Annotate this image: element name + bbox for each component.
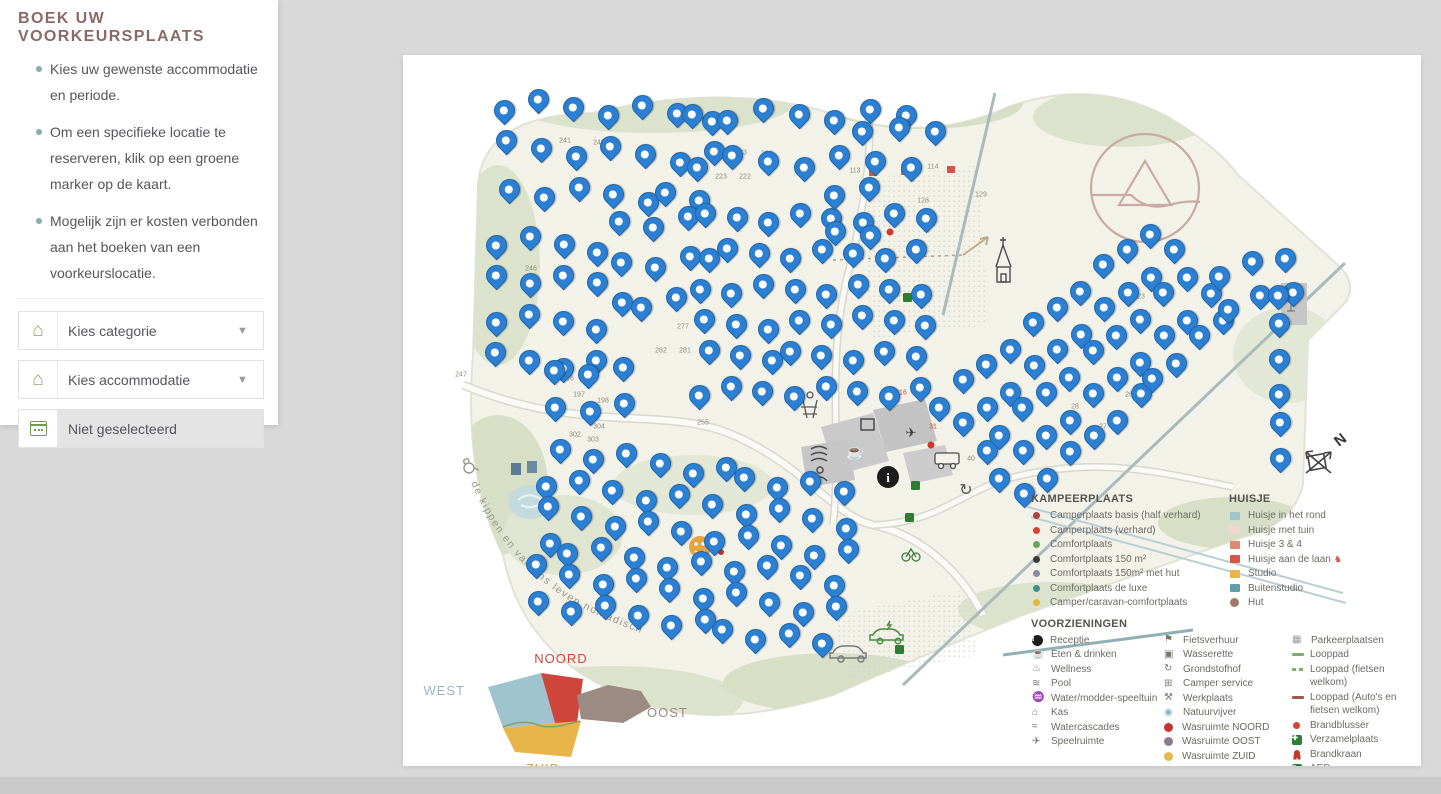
- map-pin[interactable]: [875, 275, 905, 305]
- map-pin[interactable]: [1172, 263, 1202, 293]
- huisje-laan-square: [1229, 553, 1245, 566]
- map-pin[interactable]: [722, 578, 752, 608]
- map-pin[interactable]: [661, 282, 691, 312]
- map-pin[interactable]: [901, 341, 931, 371]
- legend-item-label: Eten & drinken: [1051, 648, 1117, 662]
- map-pin[interactable]: [1113, 277, 1143, 307]
- divider: [16, 298, 264, 299]
- map-pin[interactable]: [1066, 277, 1096, 307]
- legend-item-label: Looppad (fietsen welkom): [1310, 663, 1409, 690]
- booking-sidebar: BOEK UW VOORKEURSPLAATS Kies uw gewenste…: [0, 0, 278, 425]
- legend-item: Buitenstudio: [1229, 582, 1404, 596]
- map-pin[interactable]: [879, 306, 909, 336]
- map-pin[interactable]: [610, 388, 640, 418]
- legend-item-label: Werkplaats: [1183, 692, 1233, 706]
- map-pin[interactable]: [848, 301, 878, 331]
- page-bottom-strip: [0, 777, 1441, 794]
- verzamelplaats-icon: ✚: [1291, 733, 1307, 746]
- map-pin[interactable]: [717, 279, 747, 309]
- legend-item-label: Wasserette: [1183, 648, 1233, 662]
- map-pin[interactable]: [481, 338, 511, 368]
- map-pin[interactable]: [741, 625, 771, 655]
- home-icon: ⌂: [19, 361, 58, 398]
- map-pin[interactable]: [753, 315, 783, 345]
- map-pin[interactable]: [789, 153, 819, 183]
- map-pin[interactable]: [744, 239, 774, 269]
- comfortplaats-dot: [1031, 538, 1047, 551]
- map-pin[interactable]: [593, 101, 623, 131]
- calendar-icon: [19, 410, 58, 447]
- map-pin[interactable]: [492, 126, 522, 156]
- chevron-down-icon: ▼: [237, 361, 263, 398]
- werkplaats-icon: ⚒: [1164, 692, 1180, 705]
- map-pin[interactable]: [582, 315, 612, 345]
- map-pin[interactable]: [717, 372, 747, 402]
- map-pin[interactable]: [754, 147, 784, 177]
- map-pin[interactable]: [655, 574, 685, 604]
- legend-item: Comfortplaats de luxe: [1031, 582, 1229, 596]
- map-pin[interactable]: [1009, 436, 1039, 466]
- chevron-down-icon: ▼: [237, 312, 263, 349]
- map-pin[interactable]: [1033, 464, 1063, 494]
- map-pin[interactable]: [921, 117, 951, 147]
- map-pin[interactable]: [1265, 344, 1295, 374]
- map-pin[interactable]: [755, 588, 785, 618]
- wasruimte-noord-dot: [1163, 721, 1179, 734]
- map-pin[interactable]: [856, 94, 886, 124]
- huisje-tuin-square: [1229, 524, 1245, 537]
- map-pin[interactable]: [549, 307, 579, 337]
- map-pin[interactable]: [798, 503, 828, 533]
- map-pin[interactable]: [639, 212, 669, 242]
- legend-item: ✚Verzamelplaats: [1291, 733, 1409, 747]
- map-pin[interactable]: [1270, 244, 1300, 274]
- map-pin[interactable]: [1019, 307, 1049, 337]
- map-pin[interactable]: [515, 269, 545, 299]
- legend-item: Wasruimte ZUID: [1163, 750, 1291, 764]
- map-pin[interactable]: [829, 476, 859, 506]
- map-pin[interactable]: [807, 341, 837, 371]
- grondstofhof-icon: ↻: [1164, 663, 1180, 676]
- map-pin[interactable]: [1056, 436, 1086, 466]
- map-pin[interactable]: [1055, 405, 1085, 435]
- map-pin[interactable]: [1103, 406, 1133, 436]
- map-pin[interactable]: [949, 408, 979, 438]
- map-pin[interactable]: [972, 350, 1002, 380]
- legend-item-label: Comfortplaats de luxe: [1050, 582, 1147, 596]
- legend-item: Huisje in het rond: [1229, 509, 1404, 523]
- map-pin[interactable]: [870, 336, 900, 366]
- map-pin[interactable]: [1079, 378, 1109, 408]
- legend-item-suffix-icon: ♞: [1334, 553, 1342, 567]
- map-pin[interactable]: [748, 376, 778, 406]
- map-pin[interactable]: [481, 307, 511, 337]
- map-pin[interactable]: [861, 147, 891, 177]
- map-pin[interactable]: [722, 203, 752, 233]
- map-pin[interactable]: [545, 434, 575, 464]
- legend-item: Huisje 3 & 4: [1229, 538, 1404, 552]
- date-field-label: Niet geselecteerd: [58, 410, 263, 447]
- map-pin[interactable]: [628, 91, 658, 121]
- map-pin[interactable]: [482, 261, 512, 291]
- map-pin[interactable]: [722, 310, 752, 340]
- legend-item-label: AED: [1310, 762, 1331, 766]
- map-pin[interactable]: [667, 516, 697, 546]
- legend-item: Camper/caravan-comfortplaats: [1031, 596, 1229, 610]
- map-pin[interactable]: [874, 381, 904, 411]
- camper-service-icon: ⊞: [1164, 677, 1180, 690]
- receptie-info-icon: i: [1031, 634, 1047, 647]
- map-pin[interactable]: [1031, 378, 1061, 408]
- legend-item: ♒Water/modder-speeltuin: [1031, 692, 1163, 706]
- camperplaats-verhard-dot: [1031, 524, 1047, 537]
- legend-item: Looppad (Auto's en fietsen welkom): [1291, 691, 1409, 718]
- legend-item-label: Wellness: [1051, 663, 1091, 677]
- map-pin[interactable]: [582, 268, 612, 298]
- accommodation-dropdown-label: Kies accommodatie: [58, 361, 237, 398]
- watercascades-icon: ≈: [1032, 721, 1048, 734]
- legend-item-label: Studio: [1248, 567, 1276, 581]
- map-pin[interactable]: [590, 591, 620, 621]
- legend-item-label: Watercascades: [1051, 721, 1120, 735]
- map-pin[interactable]: [1042, 292, 1072, 322]
- legend-voorzieningen-col2: ⚑Fietsverhuur▣Wasserette↻Grondstofhof⊞Ca…: [1163, 634, 1291, 767]
- instruction-item: Mogelijk zijn er kosten verbonden aan he…: [36, 208, 264, 286]
- legend-item: Brandkraan: [1291, 748, 1409, 762]
- map-pin[interactable]: [645, 448, 675, 478]
- brandkraan-icon: [1291, 748, 1307, 761]
- huisje-3-4-square: [1229, 538, 1245, 551]
- map-pin[interactable]: [596, 132, 626, 162]
- map-pin[interactable]: [1265, 408, 1295, 438]
- legend-voorzieningen-col3: ▦ParkeerplaatsenLooppadLooppad (fietsen …: [1291, 634, 1409, 767]
- map-pin[interactable]: [985, 463, 1015, 493]
- parkeerplaatsen-icon: ▦: [1292, 634, 1308, 647]
- map-pin[interactable]: [820, 180, 850, 210]
- map-pin[interactable]: [1149, 321, 1179, 351]
- map-pin[interactable]: [557, 597, 587, 627]
- map-pin[interactable]: [995, 335, 1025, 365]
- map-pin[interactable]: [906, 372, 936, 402]
- map-pin[interactable]: [527, 134, 557, 164]
- wasruimte-oost-dot: [1163, 735, 1179, 748]
- instruction-item: Kies uw gewenste accommodatie en periode…: [36, 56, 264, 108]
- huisje-rond-square: [1229, 509, 1245, 522]
- legend-item: Huisje aan de laan♞: [1229, 553, 1404, 567]
- map-pin[interactable]: [633, 506, 663, 536]
- map-pin[interactable]: [606, 247, 636, 277]
- legend-item: Wasruimte OOST: [1163, 735, 1291, 749]
- legend-item: ≋Pool: [1031, 677, 1163, 691]
- legend-item-label: Camper service: [1183, 677, 1253, 691]
- camper-caravan-dot: [1031, 596, 1047, 609]
- category-dropdown-label: Kies categorie: [58, 312, 237, 349]
- map-pin[interactable]: [686, 274, 716, 304]
- map-pin[interactable]: [1102, 363, 1132, 393]
- legend-voorzieningen-col1: iReceptie☕Eten & drinken♨Wellness≋Pool♒W…: [1031, 634, 1163, 767]
- instruction-list: Kies uw gewenste accommodatie en periode…: [18, 56, 264, 286]
- legend-item-label: Wasruimte ZUID: [1182, 750, 1256, 764]
- map-pin[interactable]: [925, 392, 955, 422]
- map-pin[interactable]: [785, 199, 815, 229]
- map-pin[interactable]: [811, 372, 841, 402]
- legend-item: ♨Wellness: [1031, 663, 1163, 677]
- instruction-text: Mogelijk zijn er kosten verbonden aan he…: [50, 213, 258, 281]
- map-pin[interactable]: [843, 377, 873, 407]
- map-pin[interactable]: [776, 243, 806, 273]
- map-pin[interactable]: [1125, 305, 1155, 335]
- map-pin[interactable]: [612, 438, 642, 468]
- legend-item: ⚒Werkplaats: [1163, 692, 1291, 706]
- legend-item-label: Huisje in het rond: [1248, 509, 1326, 523]
- looppad-autos-line: [1291, 691, 1307, 704]
- instruction-item: Om een specifieke locatie te reserveren,…: [36, 119, 264, 197]
- legend-item-label: Camperplaats (verhard): [1050, 524, 1156, 538]
- map-pin[interactable]: [515, 346, 545, 376]
- legend-item: Comfortplaats: [1031, 538, 1229, 552]
- map-pin[interactable]: [780, 381, 810, 411]
- legend-huisje-list: Huisje in het rondHuisje met tuinHuisje …: [1229, 509, 1404, 610]
- map-pin[interactable]: [825, 141, 855, 171]
- legend-item: Looppad: [1291, 648, 1409, 662]
- home-icon: ⌂: [19, 312, 58, 349]
- legend-item-label: Speelruimte: [1051, 735, 1104, 749]
- legend-item-label: Huisje aan de laan: [1248, 553, 1331, 567]
- map-pin[interactable]: [843, 270, 873, 300]
- map-pin[interactable]: [1043, 335, 1073, 365]
- legend-item: ≈Watercascades: [1031, 721, 1163, 735]
- park-map[interactable]: i ☕ ✈ ↻: [403, 55, 1421, 766]
- date-field[interactable]: Niet geselecteerd: [18, 409, 264, 448]
- map-pin[interactable]: [820, 106, 850, 136]
- map-pin[interactable]: [529, 182, 559, 212]
- map-pin[interactable]: [726, 341, 756, 371]
- map-pin[interactable]: [624, 601, 654, 631]
- legend-voorzieningen-title: VOORZIENINGEN: [1031, 618, 1409, 630]
- map-pin[interactable]: [549, 230, 579, 260]
- aed-icon: ♥: [1291, 762, 1307, 766]
- map-pin[interactable]: [1080, 421, 1110, 451]
- map-pin[interactable]: [1090, 293, 1120, 323]
- legend-item-label: Parkeerplaatsen: [1311, 634, 1384, 648]
- legend-item: Huisje met tuin: [1229, 524, 1404, 538]
- map-pin[interactable]: [1032, 421, 1062, 451]
- map-pin[interactable]: [575, 396, 605, 426]
- map-pin[interactable]: [1113, 235, 1143, 265]
- legend-item: Comfortplaats 150 m²: [1031, 553, 1229, 567]
- legend-item-label: Comfortplaats 150 m²: [1050, 553, 1146, 567]
- map-pin[interactable]: [1019, 350, 1049, 380]
- looppad-fietsen-line: [1291, 663, 1307, 676]
- map-pin[interactable]: [1136, 219, 1166, 249]
- map-pin[interactable]: [604, 207, 634, 237]
- map-pin[interactable]: [1265, 380, 1295, 410]
- legend-item-label: Grondstofhof: [1183, 663, 1241, 677]
- map-pin[interactable]: [812, 279, 842, 309]
- map-pin[interactable]: [561, 142, 591, 172]
- map-pin[interactable]: [489, 95, 519, 125]
- map-pin[interactable]: [555, 560, 585, 590]
- comfortplaats-deluxe-dot: [1031, 582, 1047, 595]
- fietsverhuur-icon: ⚑: [1164, 634, 1180, 647]
- brandblusser-dot: [1291, 719, 1307, 732]
- legend-item: Camperplaats basis (half verhard): [1031, 509, 1229, 523]
- looppad-line: [1291, 648, 1307, 661]
- map-pin[interactable]: [880, 199, 910, 229]
- map-pin[interactable]: [608, 352, 638, 382]
- legend-item: ↻Grondstofhof: [1163, 663, 1291, 677]
- legend-item-label: Comfortplaats: [1050, 538, 1112, 552]
- legend-item: Studio: [1229, 567, 1404, 581]
- map-pin[interactable]: [754, 208, 784, 238]
- legend-item-label: Brandkraan: [1310, 748, 1362, 762]
- pool-icon: ≋: [1032, 677, 1048, 690]
- map-pin[interactable]: [912, 203, 942, 233]
- map-pin[interactable]: [622, 564, 652, 594]
- map-pin[interactable]: [564, 172, 594, 202]
- map-pin[interactable]: [906, 279, 936, 309]
- legend-item-label: Looppad: [1310, 648, 1349, 662]
- legend-item-label: Camper/caravan-comfortplaats: [1050, 596, 1187, 610]
- legend-item-label: Fietsverhuur: [1183, 634, 1239, 648]
- map-pin[interactable]: [765, 493, 795, 523]
- legend-item: ⊞Camper service: [1163, 677, 1291, 691]
- map-pin[interactable]: [780, 274, 810, 304]
- legend-item-label: Receptie: [1050, 634, 1089, 648]
- map-pin[interactable]: [821, 592, 851, 622]
- legend-item-label: Hut: [1248, 596, 1264, 610]
- map-pin[interactable]: [567, 502, 597, 532]
- map-pin[interactable]: [1161, 348, 1191, 378]
- map-pin[interactable]: [870, 244, 900, 274]
- legend-item: ♥AED: [1291, 762, 1409, 766]
- legend-item: Hut: [1229, 596, 1404, 610]
- camperplaats-basis-dot: [1031, 509, 1047, 522]
- map-pin[interactable]: [559, 93, 589, 123]
- map-pin[interactable]: [524, 85, 554, 115]
- map-pin[interactable]: [549, 260, 579, 290]
- legend-item: ▦Parkeerplaatsen: [1291, 634, 1409, 648]
- legend-item-label: Looppad (Auto's en fietsen welkom): [1310, 691, 1409, 718]
- map-pin[interactable]: [785, 305, 815, 335]
- natuurvijver-icon: ◉: [1164, 706, 1180, 719]
- map-pin[interactable]: [534, 492, 564, 522]
- studio-square: [1229, 567, 1245, 580]
- map-pin[interactable]: [524, 587, 554, 617]
- legend-item: Camperplaats (verhard): [1031, 524, 1229, 538]
- map-pin[interactable]: [1264, 309, 1294, 339]
- map-pin[interactable]: [816, 310, 846, 340]
- legend-item: ▣Wasserette: [1163, 648, 1291, 662]
- map-pin[interactable]: [1160, 235, 1190, 265]
- buitenstudio-square: [1229, 582, 1245, 595]
- map-pin[interactable]: [698, 489, 728, 519]
- map-pin[interactable]: [833, 534, 863, 564]
- hut-dot: [1229, 596, 1245, 609]
- map-pin[interactable]: [749, 270, 779, 300]
- map-pin[interactable]: [495, 175, 525, 205]
- map-pin[interactable]: [749, 94, 779, 124]
- map-pin[interactable]: [1266, 443, 1296, 473]
- legend-item-label: Huisje met tuin: [1248, 524, 1314, 538]
- map-pin[interactable]: [1238, 247, 1268, 277]
- legend-item-label: Wasruimte NOORD: [1182, 721, 1269, 735]
- map-pin[interactable]: [685, 381, 715, 411]
- map-pin[interactable]: [854, 173, 884, 203]
- legend-item: ☕Eten & drinken: [1031, 648, 1163, 662]
- legend-item-label: Pool: [1051, 677, 1071, 691]
- map-pin[interactable]: [838, 346, 868, 376]
- legend-kampeerplaats-title: KAMPEERPLAATS: [1031, 493, 1229, 505]
- legend-item-label: Wasruimte OOST: [1182, 735, 1261, 749]
- legend-item-label: Comfortplaats 150m² met hut: [1050, 567, 1180, 581]
- accommodation-dropdown[interactable]: ⌂ Kies accommodatie ▼: [18, 360, 264, 399]
- wellness-icon: ♨: [1032, 663, 1048, 676]
- map-pin[interactable]: [695, 336, 725, 366]
- map-pin[interactable]: [897, 153, 927, 183]
- comfortplaats-150-hut-dot: [1031, 567, 1047, 580]
- map-pin[interactable]: [690, 305, 720, 335]
- legend-item-label: Water/modder-speeltuin: [1051, 692, 1157, 706]
- instruction-text: Om een specifieke locatie te reserveren,…: [50, 124, 239, 192]
- legend-item: ◉Natuurvijver: [1163, 706, 1291, 720]
- map-pin[interactable]: [1089, 250, 1119, 280]
- eten-drinken-icon: ☕: [1032, 648, 1048, 661]
- map-pin[interactable]: [808, 629, 838, 659]
- legend-item: Brandblusser: [1291, 719, 1409, 733]
- legend-item-label: Brandblusser: [1310, 719, 1369, 733]
- map-legend: KAMPEERPLAATS Camperplaats basis (half v…: [1031, 493, 1409, 766]
- map-pin[interactable]: [631, 139, 661, 169]
- map-pin[interactable]: [541, 392, 571, 422]
- map-pin[interactable]: [598, 475, 628, 505]
- map-pin[interactable]: [1102, 320, 1132, 350]
- wasruimte-zuid-dot: [1163, 750, 1179, 763]
- legend-huisje-title: HUISJE: [1229, 493, 1404, 505]
- sidebar-title: BOEK UW VOORKEURSPLAATS: [18, 10, 264, 46]
- category-dropdown[interactable]: ⌂ Kies categorie ▼: [18, 311, 264, 350]
- map-pin[interactable]: [482, 230, 512, 260]
- legend-item-label: Verzamelplaats: [1310, 733, 1378, 747]
- legend-item-label: Kas: [1051, 706, 1068, 720]
- legend-item-label: Natuurvijver: [1183, 706, 1236, 720]
- legend-item: Comfortplaats 150m² met hut: [1031, 567, 1229, 581]
- map-pin[interactable]: [657, 611, 687, 641]
- legend-item-label: Buitenstudio: [1248, 582, 1303, 596]
- map-pin[interactable]: [902, 234, 932, 264]
- map-pin[interactable]: [972, 393, 1002, 423]
- map-pin[interactable]: [641, 253, 671, 283]
- map-pin[interactable]: [515, 299, 545, 329]
- map-pin[interactable]: [948, 365, 978, 395]
- map-pin[interactable]: [516, 222, 546, 252]
- map-pin[interactable]: [1055, 363, 1085, 393]
- speelruimte-icon: ✈: [1032, 735, 1048, 748]
- legend-item: ✈Speelruimte: [1031, 735, 1163, 749]
- map-pin[interactable]: [733, 520, 763, 550]
- map-pin[interactable]: [911, 310, 941, 340]
- instruction-text: Kies uw gewenste accommodatie en periode…: [50, 61, 258, 103]
- legend-kampeerplaats-list: Camperplaats basis (half verhard)Camperp…: [1031, 509, 1229, 610]
- map-pin[interactable]: [583, 237, 613, 267]
- legend-item-label: Huisje 3 & 4: [1248, 538, 1302, 552]
- map-pin[interactable]: [599, 180, 629, 210]
- legend-item: Looppad (fietsen welkom): [1291, 663, 1409, 690]
- map-pin[interactable]: [796, 466, 826, 496]
- map-pin[interactable]: [784, 100, 814, 130]
- water-modder-speeltuin-icon: ♒: [1032, 692, 1048, 705]
- legend-item: Wasruimte NOORD: [1163, 721, 1291, 735]
